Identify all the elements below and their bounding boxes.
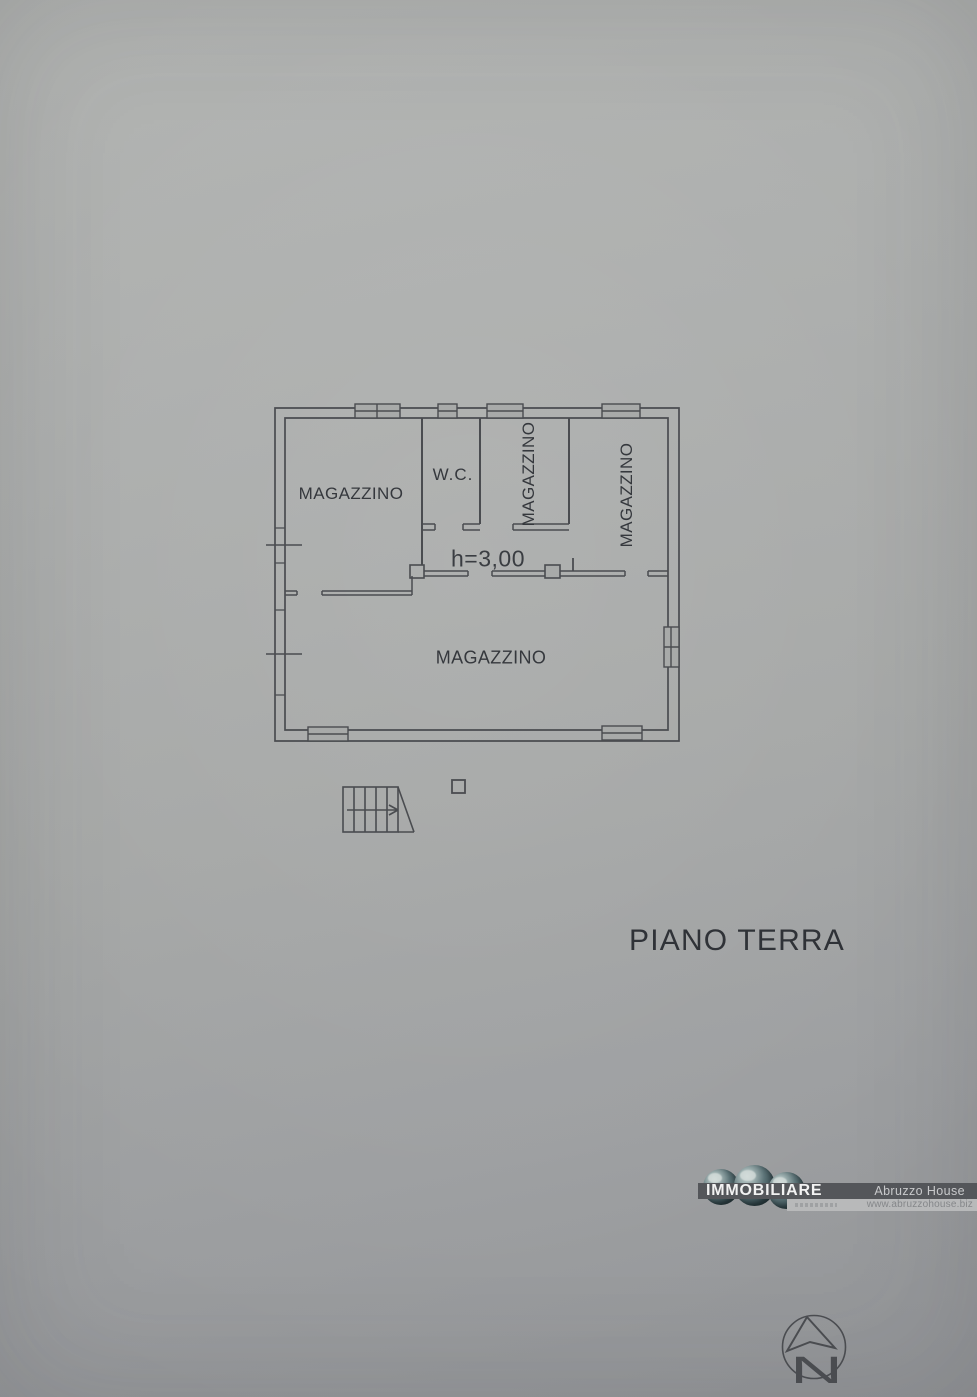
logo-website: www.abruzzohouse.biz (867, 1199, 977, 1211)
agency-logo: IMMOBILIARE Abruzzo House www.abruzzohou… (690, 1163, 977, 1215)
north-letter: N (790, 1350, 843, 1392)
logo-strip: www.abruzzohouse.biz (787, 1199, 977, 1211)
column-marker (452, 780, 465, 793)
north-arrow-icon: N (783, 1316, 846, 1393)
logo-brand: IMMOBILIARE (706, 1183, 822, 1199)
floor-title: PIANO TERRA (629, 924, 845, 958)
logo-agency-name: Abruzzo House (874, 1183, 965, 1199)
room-label-magazzino-middle: MAGAZZINO (519, 422, 539, 527)
scanned-floor-plan-page: N MAGAZZINO W.C. MAGAZZINO MAGAZZINO MAG… (0, 0, 977, 1397)
stairs-icon (343, 787, 414, 832)
room-label-wc: W.C. (433, 465, 474, 485)
ceiling-height-note: h=3,00 (451, 546, 525, 573)
logo-fine-print (795, 1203, 837, 1207)
logo-bar: IMMOBILIARE Abruzzo House (698, 1183, 977, 1199)
room-label-magazzino-top-left: MAGAZZINO (299, 484, 404, 504)
room-label-magazzino-large: MAGAZZINO (436, 648, 547, 669)
room-label-magazzino-right: MAGAZZINO (617, 443, 637, 548)
